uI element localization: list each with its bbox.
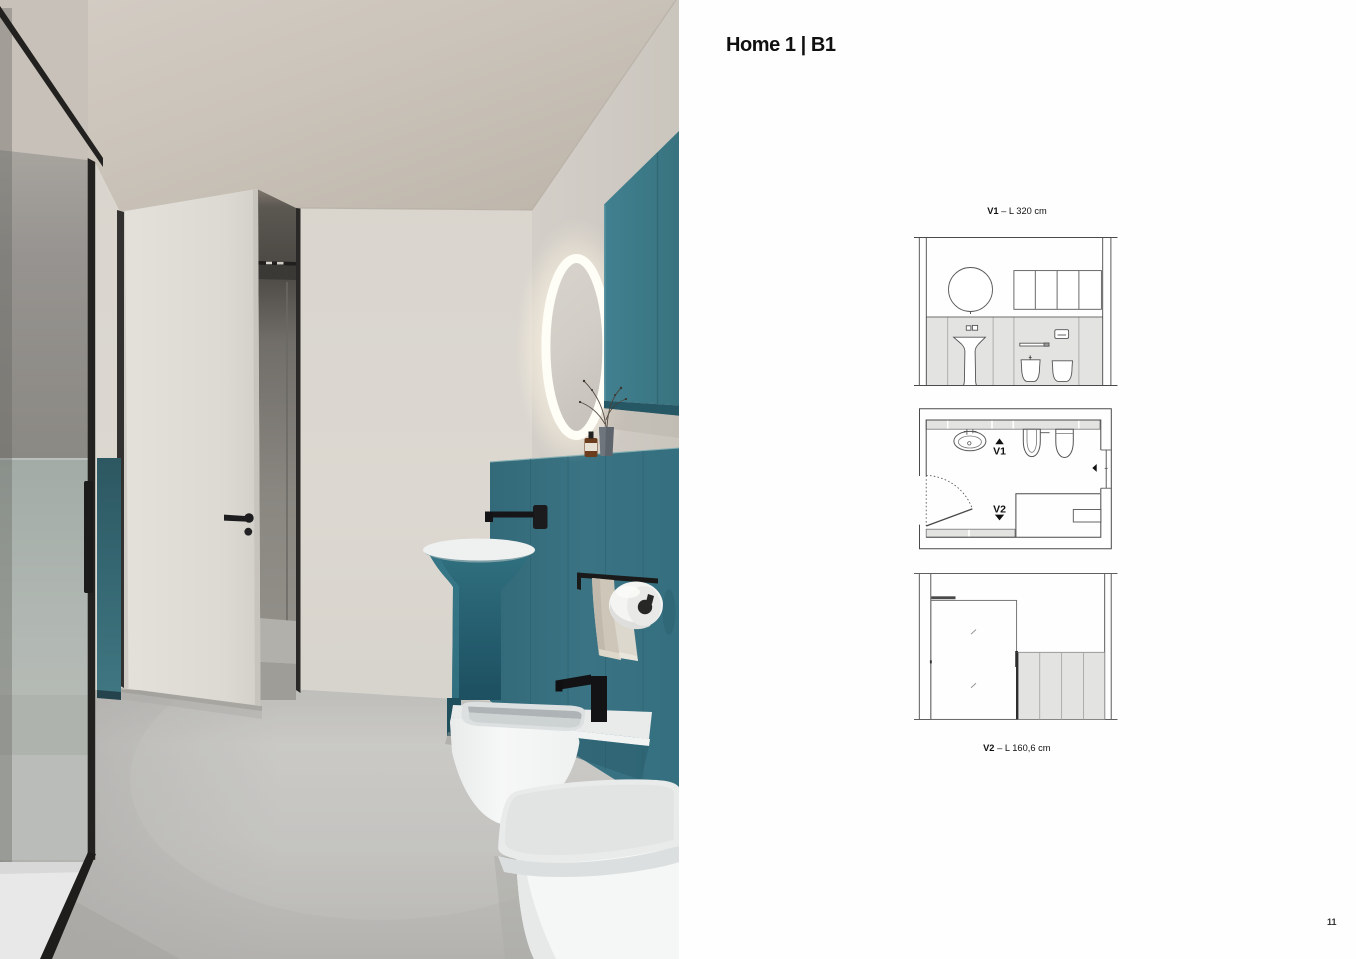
svg-text:V2 – L 160,6 cm: V2 – L 160,6 cm <box>983 743 1051 753</box>
svg-text:V1: V1 <box>993 446 1006 458</box>
svg-text:V1 – L 320 cm: V1 – L 320 cm <box>987 206 1047 216</box>
svg-text:V2: V2 <box>993 504 1006 516</box>
